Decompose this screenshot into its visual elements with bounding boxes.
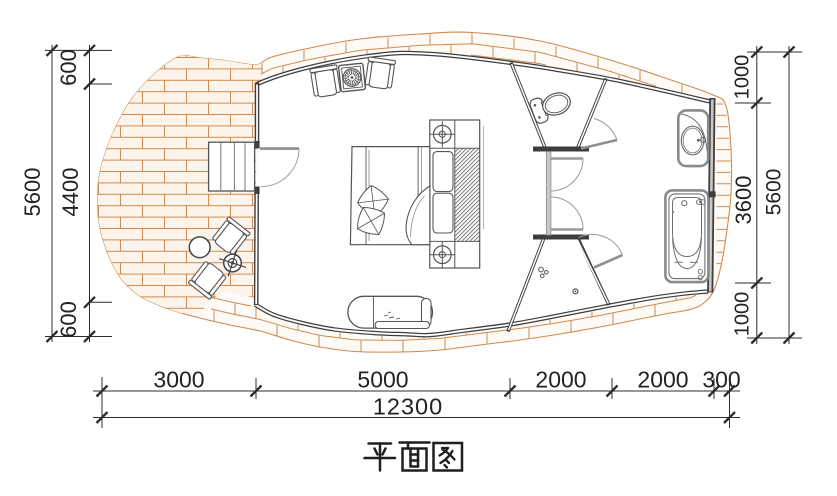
svg-text:600: 600 [56, 49, 81, 86]
svg-text:1000: 1000 [732, 292, 754, 337]
svg-text:2000: 2000 [535, 367, 586, 393]
svg-text:5600: 5600 [20, 168, 45, 217]
svg-text:5000: 5000 [357, 367, 408, 393]
svg-text:2000: 2000 [637, 367, 688, 393]
svg-text:3000: 3000 [153, 367, 204, 393]
svg-text:5600: 5600 [763, 169, 786, 216]
svg-text:300: 300 [702, 367, 740, 393]
svg-text:12300: 12300 [373, 394, 443, 420]
svg-text:1000: 1000 [732, 55, 754, 100]
svg-text:600: 600 [56, 301, 81, 338]
svg-text:3600: 3600 [731, 176, 756, 225]
svg-text:4400: 4400 [58, 168, 83, 217]
